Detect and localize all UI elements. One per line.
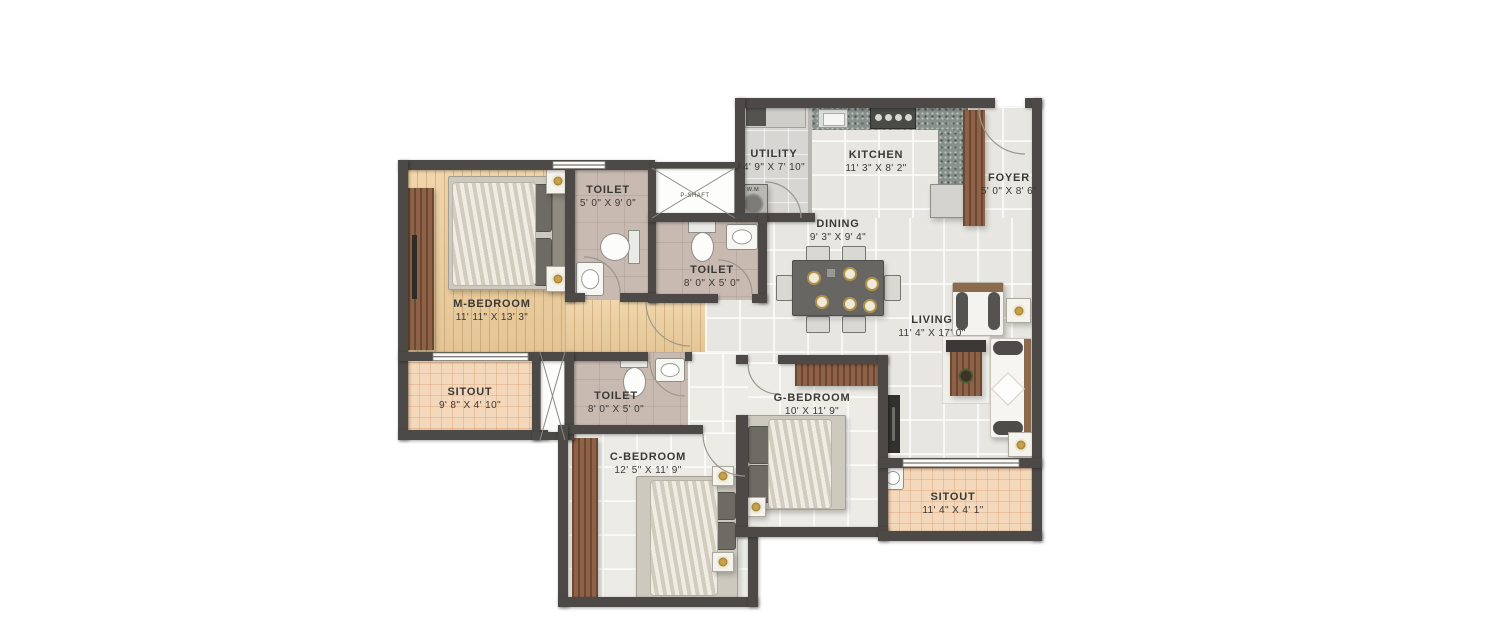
room-dims: 5' 0" X 9' 0" (580, 198, 636, 211)
room-name: C-BEDROOM (610, 451, 686, 465)
plate-icon (807, 271, 821, 285)
room-label-utility: UTILITY 4' 9" X 7' 10" (743, 148, 805, 174)
g-bed-blanket (768, 419, 832, 509)
wc-bowl-icon (600, 233, 630, 261)
wall (565, 168, 575, 302)
room-label-toilet-m: TOILET 5' 0" X 9' 0" (580, 184, 636, 210)
sofa-cushion (991, 372, 1025, 406)
tv-unit-handle (892, 407, 895, 441)
table-lamp-icon (717, 470, 730, 483)
shaft-label: P-SHAFT (680, 193, 709, 199)
plate-icon (815, 295, 829, 309)
room-name: FOYER (981, 172, 1037, 186)
dining-chair (806, 316, 830, 333)
burner-icon (885, 114, 892, 121)
armchair-frame (953, 283, 1003, 292)
table-lamp-icon (1012, 304, 1025, 317)
coffee-table (950, 352, 982, 396)
room-label-c-bedroom: C-BEDROOM 12' 5" X 11' 9" (610, 451, 686, 477)
wall (878, 355, 888, 541)
room-dims: 9' 3" X 9' 4" (810, 232, 866, 245)
room-name: DINING (810, 218, 866, 232)
refrigerator (930, 184, 966, 218)
room-name: UTILITY (743, 148, 805, 162)
room-label-m-bedroom: M-BEDROOM 11' 11" X 13' 3" (453, 298, 530, 324)
wall (398, 352, 648, 361)
utility-kitchen-partition (808, 106, 812, 216)
wc-bowl-icon (691, 232, 714, 262)
room-dims: 4' 9" X 7' 10" (743, 162, 805, 175)
utility-sink (746, 108, 766, 126)
room-label-living: LIVING 11' 4" X 17' 0" (898, 314, 965, 340)
room-dims: 10' X 11' 9" (774, 406, 851, 419)
room-label-sitout-left: SITOUT 9' 8" X 4' 10" (439, 386, 501, 412)
room-dims: 9' 8" X 4' 10" (439, 400, 501, 413)
wall (736, 355, 748, 364)
dining-chair (842, 316, 866, 333)
plate-icon (865, 277, 879, 291)
room-name: SITOUT (439, 386, 501, 400)
room-dims: 5' 0" X 8' 6" (981, 186, 1037, 199)
wardrobe-handle (412, 235, 417, 299)
washbasin-icon (726, 224, 758, 250)
wall (735, 98, 995, 108)
burner-icon (895, 114, 902, 121)
room-label-g-bedroom: G-BEDROOM 10' X 11' 9" (774, 392, 851, 418)
side-table (1008, 432, 1033, 457)
plate-icon (843, 297, 857, 311)
plate-icon (843, 267, 857, 281)
passage-floor (565, 300, 705, 354)
wall (748, 527, 758, 607)
room-label-sitout-right: SITOUT 11' 4" X 4' 1" (922, 491, 983, 517)
dining-chair (776, 275, 793, 301)
bedside-table (712, 466, 734, 486)
washing-machine-drum-icon (743, 193, 764, 214)
table-lamp-icon (717, 556, 730, 569)
sofa (990, 338, 1032, 438)
washbasin-icon (576, 262, 604, 296)
wall (736, 415, 748, 537)
room-name: SITOUT (922, 491, 983, 505)
table-centerpiece-icon (827, 269, 835, 277)
wall (648, 294, 718, 303)
wall (398, 160, 408, 440)
room-name: TOILET (588, 390, 644, 404)
floor-plan-canvas: W.M (0, 0, 1500, 625)
hob-icon (870, 105, 916, 129)
table-lamp-icon (750, 501, 763, 514)
wall (532, 352, 540, 440)
wall (558, 597, 758, 607)
wall (398, 430, 548, 440)
g-bed-pillow (748, 426, 770, 464)
room-dims: 8' 0" X 5' 0" (684, 278, 740, 291)
room-label-foyer: FOYER 5' 0" X 8' 6" (981, 172, 1037, 198)
sofa-frame (1024, 339, 1031, 437)
table-lamp-icon (1014, 438, 1027, 451)
wall (752, 294, 767, 303)
wall (565, 293, 585, 302)
wall (878, 458, 1042, 468)
room-label-kitchen: KITCHEN 11' 3" X 8' 2" (845, 149, 906, 175)
bedside-table (746, 497, 766, 517)
washbasin-icon (655, 358, 685, 382)
room-dims: 8' 0" X 5' 0" (588, 404, 644, 417)
c-bedroom-wardrobe (572, 438, 598, 598)
armchair-arm (988, 292, 1000, 330)
room-name: TOILET (684, 264, 740, 278)
c-bed-blanket (650, 480, 718, 596)
wall (778, 355, 888, 364)
table-lamp-icon (552, 175, 565, 188)
room-dims: 11' 4" X 17' 0" (898, 328, 965, 341)
wall (398, 160, 655, 170)
wall (685, 352, 692, 361)
table-lamp-icon (552, 273, 565, 286)
sofa-arm (993, 341, 1023, 355)
room-label-toilet-mid: TOILET 8' 0" X 5' 0" (684, 264, 740, 290)
room-label-toilet-c: TOILET 8' 0" X 5' 0" (588, 390, 644, 416)
kitchen-sink (818, 109, 848, 128)
coffee-table-shelf (946, 340, 986, 352)
room-dims: 11' 4" X 4' 1" (922, 505, 983, 518)
room-name: LIVING (898, 314, 965, 328)
sink-basin-icon (823, 113, 845, 126)
burner-icon (905, 114, 912, 121)
room-name: TOILET (580, 184, 636, 198)
wall (1032, 98, 1042, 541)
room-dims: 12' 5" X 11' 9" (610, 465, 686, 478)
plate-icon (863, 299, 877, 313)
wall (648, 213, 815, 222)
room-dims: 11' 11" X 13' 3" (453, 312, 530, 325)
wall (758, 213, 767, 303)
wall (878, 531, 1042, 541)
bedside-table (712, 552, 734, 572)
wall (558, 425, 703, 434)
wall (558, 425, 568, 607)
side-table (1006, 298, 1031, 323)
dining-chair (884, 275, 901, 301)
dining-table (792, 260, 884, 316)
tv-unit (888, 395, 900, 453)
room-name: KITCHEN (845, 149, 906, 163)
wall (652, 162, 738, 168)
g-bedroom-wardrobe (795, 364, 881, 386)
room-name: M-BEDROOM (453, 298, 530, 312)
room-name: G-BEDROOM (774, 392, 851, 406)
m-bed-blanket (452, 182, 536, 286)
plant-icon (959, 369, 974, 384)
room-dims: 11' 3" X 8' 2" (845, 163, 906, 176)
burner-icon (875, 114, 882, 121)
room-label-dining: DINING 9' 3" X 9' 4" (810, 218, 866, 244)
wall (736, 527, 888, 537)
foyer-cabinet (963, 110, 985, 226)
washing-machine-label: W.M (747, 187, 760, 193)
wall (648, 168, 656, 303)
